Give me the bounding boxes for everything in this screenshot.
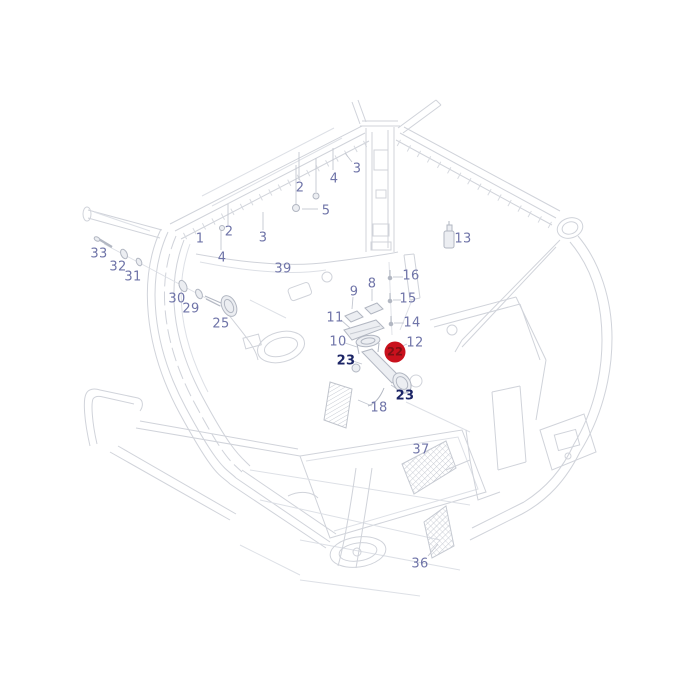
part-ref-11-16[interactable]: 11 bbox=[326, 312, 343, 325]
part-ref-4-3[interactable]: 4 bbox=[218, 252, 227, 265]
part-ref-39-9[interactable]: 39 bbox=[274, 263, 291, 276]
part-ref-4-5[interactable]: 4 bbox=[330, 173, 339, 186]
part-ref-25-23[interactable]: 25 bbox=[212, 318, 229, 331]
part-ref-33-18[interactable]: 33 bbox=[90, 248, 107, 261]
part-ref-16-10[interactable]: 16 bbox=[402, 270, 419, 283]
part-ref-selected-22-25[interactable]: 22 bbox=[385, 342, 406, 363]
part-ref-10-17[interactable]: 10 bbox=[329, 336, 346, 349]
part-ref-14-12[interactable]: 14 bbox=[403, 317, 420, 330]
part-ref-36-29[interactable]: 36 bbox=[411, 558, 428, 571]
part-ref-15-11[interactable]: 15 bbox=[399, 293, 416, 306]
part-ref-31-20[interactable]: 31 bbox=[124, 271, 141, 284]
part-ref-29-22[interactable]: 29 bbox=[182, 303, 199, 316]
parts-diagram-canvas: 1234243513391615141298111033323130292523… bbox=[0, 0, 700, 700]
part-ref-18-27[interactable]: 18 bbox=[370, 402, 387, 415]
part-ref-2-4[interactable]: 2 bbox=[296, 182, 305, 195]
part-ref-2-1[interactable]: 2 bbox=[225, 226, 234, 239]
part-ref-8-15[interactable]: 8 bbox=[368, 278, 377, 291]
part-ref-13-8[interactable]: 13 bbox=[454, 233, 471, 246]
part-ref-23-24[interactable]: 23 bbox=[337, 355, 356, 368]
part-ref-5-7[interactable]: 5 bbox=[322, 205, 331, 218]
part-ref-1-0[interactable]: 1 bbox=[196, 233, 205, 246]
part-ref-9-14[interactable]: 9 bbox=[350, 286, 359, 299]
part-ref-37-28[interactable]: 37 bbox=[412, 444, 429, 457]
part-ref-12-13[interactable]: 12 bbox=[406, 337, 423, 350]
part-ref-3-2[interactable]: 3 bbox=[259, 232, 268, 245]
part-ref-3-6[interactable]: 3 bbox=[353, 163, 362, 176]
part-ref-23-26[interactable]: 23 bbox=[396, 390, 415, 403]
part-label-layer: 1234243513391615141298111033323130292523… bbox=[0, 0, 700, 700]
